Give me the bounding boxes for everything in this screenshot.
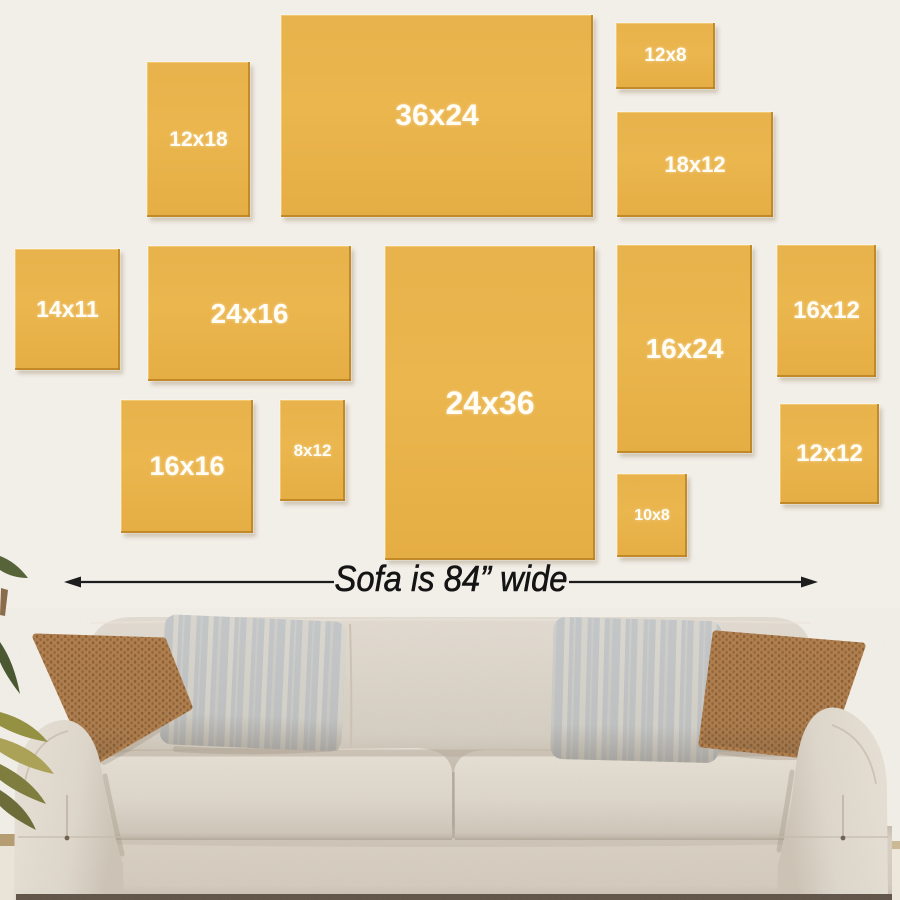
svg-text:Sofa is 84” wide: Sofa is 84” wide: [335, 558, 568, 599]
